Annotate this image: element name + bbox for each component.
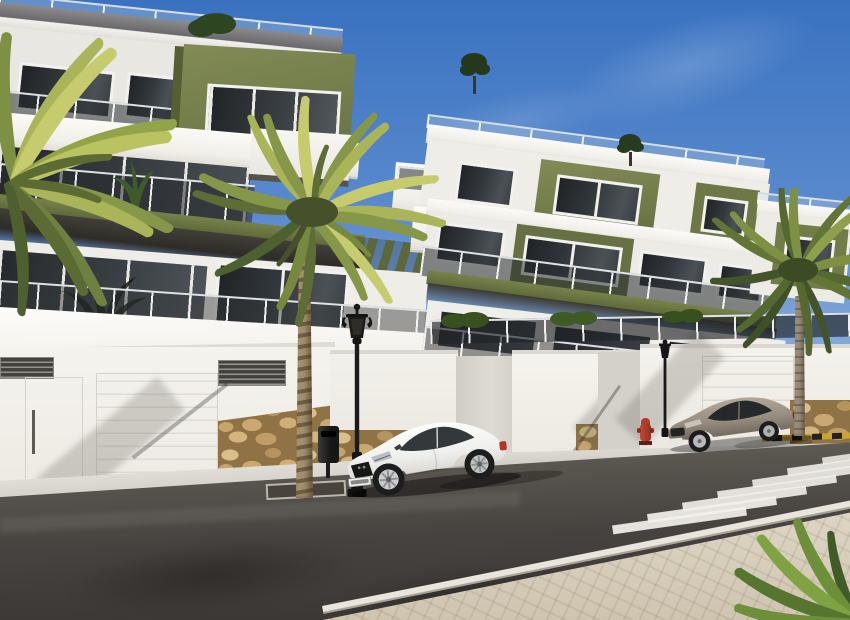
palm-crown-right [698,188,850,368]
rooftop-tree [616,132,646,166]
vent-grille [218,360,286,386]
vent-grille [0,357,54,379]
window [454,161,517,208]
rooftop-tree [458,50,492,94]
scene [0,0,850,620]
hydrant-cap [650,428,654,433]
rooftop-shrub [186,8,242,38]
palm-crown-centre [162,82,462,342]
hydrant-cap [637,428,641,433]
hydrant-body [640,424,651,441]
fence-bush [548,306,598,326]
bin-pole [326,463,330,478]
palm-fronds-bottom-right [706,456,850,620]
door-handle [32,410,35,454]
palm-fronds-top-left [0,10,190,350]
fire-hydrant [638,418,653,446]
hydrant-base [639,441,652,445]
